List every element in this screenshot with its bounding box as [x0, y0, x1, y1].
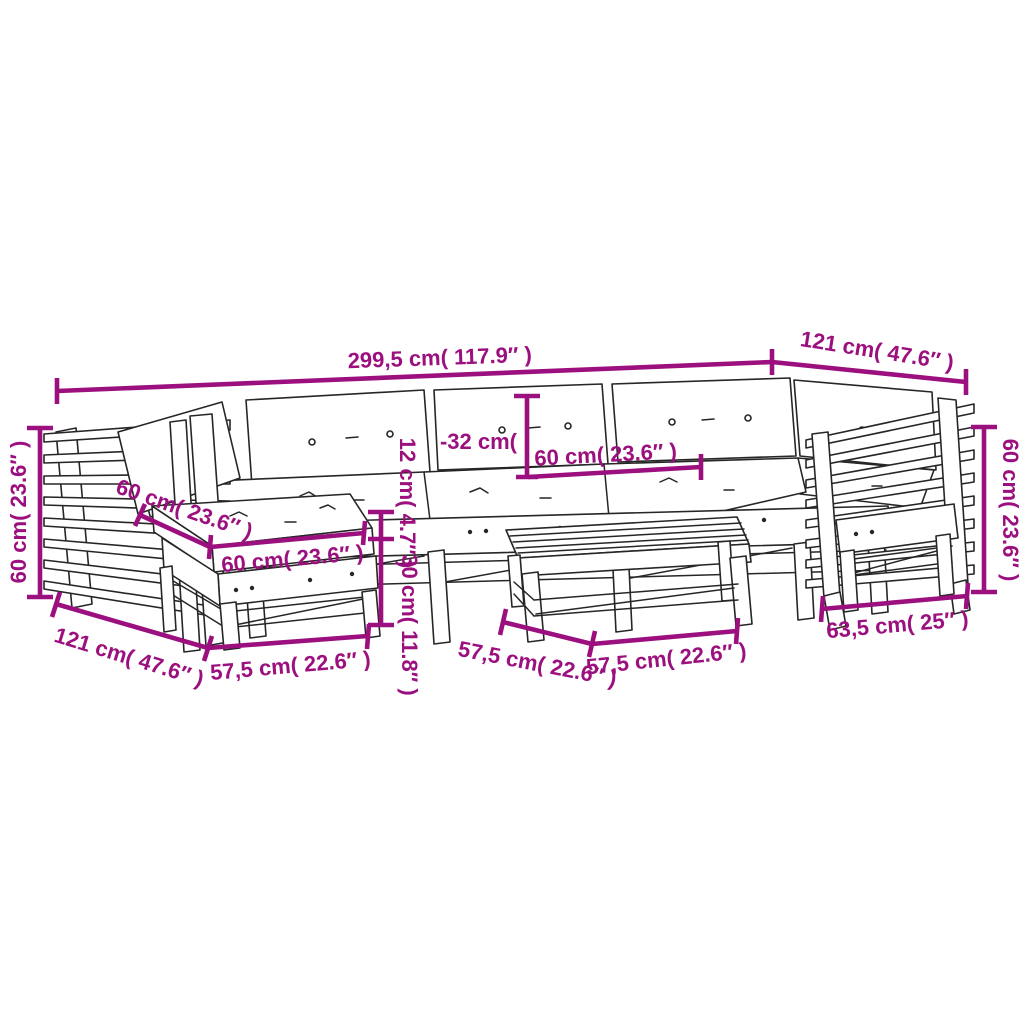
- sofa-leg: [428, 550, 450, 644]
- dim-overall-width-label: 299,5 cm( 117.9″ ): [347, 342, 532, 373]
- frame-leg: [936, 534, 954, 596]
- dim-left-height-label: 60 cm( 23.6″ ): [6, 441, 31, 584]
- product-dimension-diagram: 299,5 cm( 117.9″ ) 121 cm( 47.6″ ) 60 cm…: [0, 0, 1024, 1024]
- dim-ottoman-width-label: 57,5 cm( 22.6″ ): [209, 646, 372, 685]
- dim-backrest-height-label: -32 cm(: [440, 429, 518, 454]
- dim-left-height: 60 cm( 23.6″ ): [6, 428, 53, 597]
- dim-seat-height-label: 30 cm( 11.8″ ): [397, 554, 422, 695]
- dim-right-height: 60 cm( 23.6″ ): [971, 427, 1023, 592]
- dim-cushion-thickness-label: 12 cm( 4.7″ ): [395, 438, 420, 568]
- frame-leg: [840, 550, 858, 612]
- ottoman-leg: [220, 602, 240, 650]
- diagram-canvas: 299,5 cm( 117.9″ ) 121 cm( 47.6″ ) 60 cm…: [0, 0, 1024, 1024]
- ottoman-leg: [362, 590, 380, 638]
- dim-table-width-right: 57,5 cm( 22.6″ ): [585, 618, 748, 679]
- table-leg: [730, 556, 752, 626]
- dim-right-height-label: 60 cm( 23.6″ ): [998, 439, 1023, 582]
